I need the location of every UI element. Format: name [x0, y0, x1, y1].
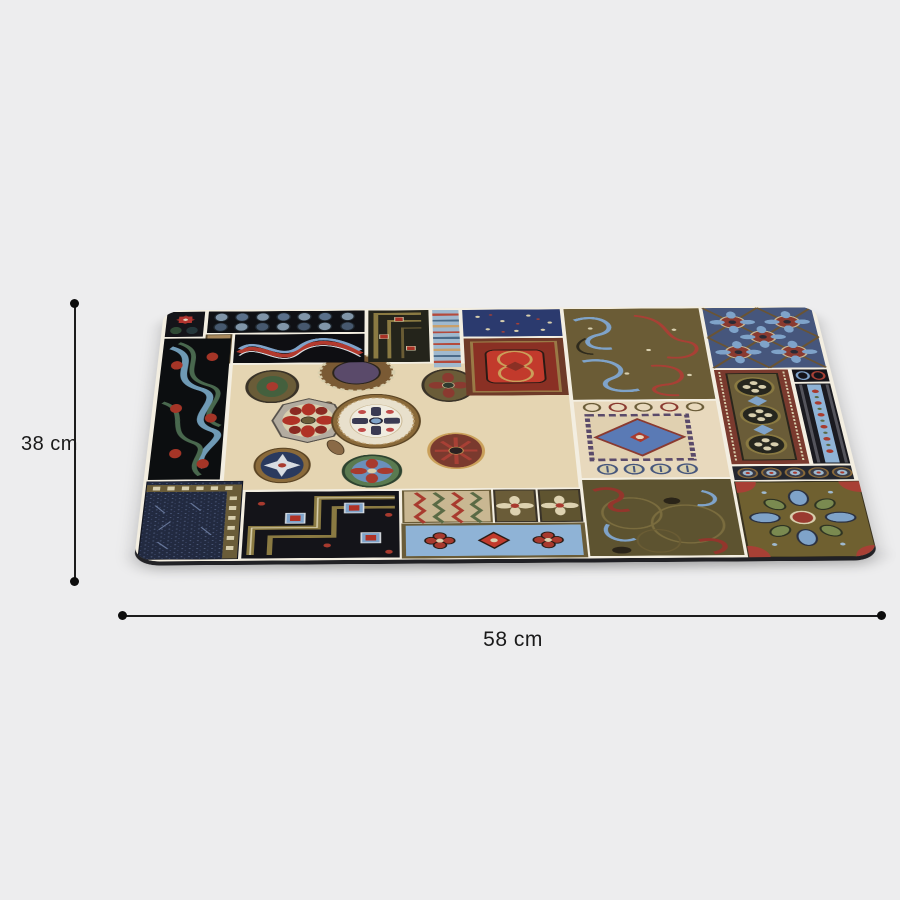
height-dimension-label: 38 cm [21, 433, 78, 455]
olive-flower-tile [735, 481, 878, 557]
navy-carpet-tile [138, 481, 242, 559]
width-dimension-right-dot [877, 611, 886, 620]
greek-key-corner-tile [368, 310, 430, 362]
navy-floral-tile [462, 309, 562, 336]
clover-band-tile [714, 370, 809, 465]
wavy-ribbon-tile [233, 334, 364, 363]
width-dimension-line [123, 615, 882, 617]
circle-strip-tile [732, 466, 854, 481]
star-tile [165, 312, 205, 337]
small-flower-tiles [494, 490, 582, 522]
mat-pattern-graphic [134, 306, 878, 562]
width-dimension-label: 58 cm [473, 629, 553, 651]
stage: 38 cm 58 cm [0, 0, 900, 900]
height-dimension-top-dot [70, 299, 79, 308]
pinecone-leaves-tile [207, 311, 365, 333]
chevron-tile [403, 490, 492, 523]
blue-kaleidoscope-tile [702, 307, 826, 368]
olive-arabesque-tile [563, 308, 715, 400]
paisley-wave-tile [148, 338, 231, 480]
cream-ornate-tile [574, 401, 730, 478]
red-celtic-tile [464, 338, 569, 396]
brown-marbled-tile [582, 479, 745, 556]
greek-key-tile [241, 491, 400, 559]
blue-flower-strip [404, 523, 587, 557]
height-dimension-bottom-dot [70, 577, 79, 586]
stripe-band-tile [432, 310, 461, 367]
product-mat [134, 306, 878, 562]
width-dimension-left-dot [118, 611, 127, 620]
